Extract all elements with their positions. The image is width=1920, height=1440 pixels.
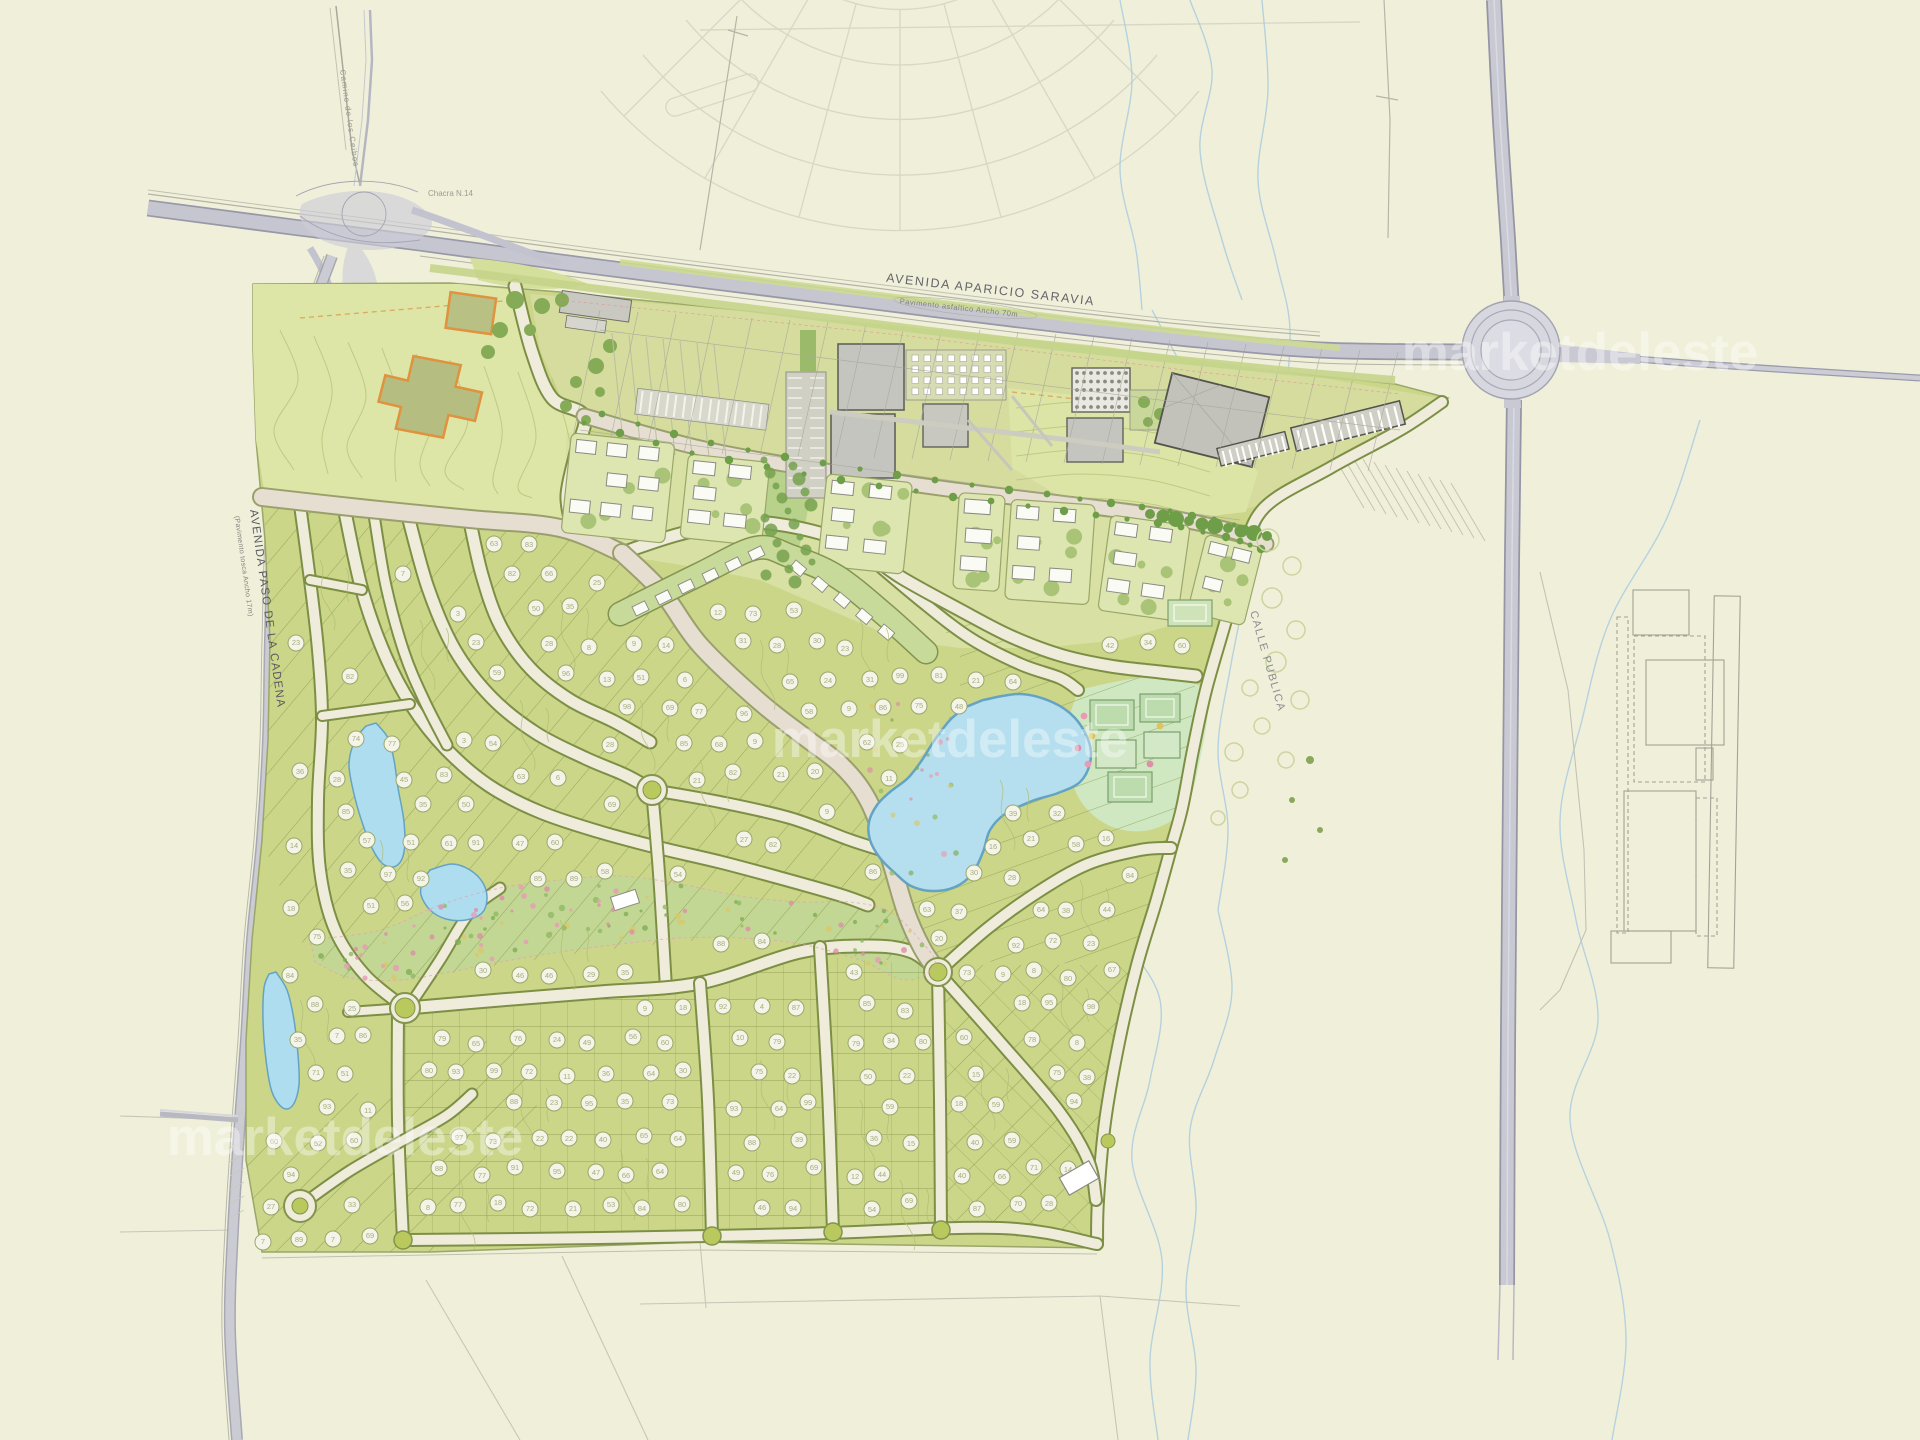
- svg-text:96: 96: [740, 709, 748, 718]
- svg-text:69: 69: [366, 1231, 374, 1240]
- svg-text:75: 75: [755, 1067, 763, 1076]
- svg-text:8: 8: [587, 643, 591, 652]
- svg-text:65: 65: [786, 677, 794, 686]
- svg-text:65: 65: [472, 1039, 480, 1048]
- svg-text:83: 83: [901, 1006, 909, 1015]
- svg-text:66: 66: [545, 569, 553, 578]
- svg-text:89: 89: [295, 1235, 303, 1244]
- svg-text:33: 33: [348, 1200, 356, 1209]
- svg-text:60: 60: [661, 1038, 669, 1047]
- svg-text:11: 11: [885, 774, 893, 783]
- svg-text:29: 29: [587, 970, 595, 979]
- svg-text:30: 30: [679, 1066, 687, 1075]
- svg-text:35: 35: [419, 800, 427, 809]
- svg-text:28: 28: [545, 639, 553, 648]
- svg-text:40: 40: [971, 1138, 979, 1147]
- svg-text:42: 42: [1106, 641, 1114, 650]
- svg-text:56: 56: [629, 1032, 637, 1041]
- svg-text:22: 22: [565, 1134, 573, 1143]
- svg-text:63: 63: [923, 905, 931, 914]
- svg-text:85: 85: [863, 999, 871, 1008]
- svg-text:72: 72: [526, 1204, 534, 1213]
- svg-text:8: 8: [1032, 966, 1036, 975]
- svg-text:36: 36: [870, 1134, 878, 1143]
- svg-text:51: 51: [367, 901, 375, 910]
- svg-text:23: 23: [1087, 939, 1095, 948]
- svg-text:25: 25: [348, 1004, 356, 1013]
- svg-text:47: 47: [516, 839, 524, 848]
- svg-text:79: 79: [773, 1037, 781, 1046]
- svg-text:61: 61: [445, 839, 453, 848]
- svg-text:28: 28: [333, 775, 341, 784]
- svg-text:98: 98: [623, 702, 631, 711]
- svg-text:9: 9: [825, 807, 829, 816]
- svg-text:46: 46: [545, 971, 553, 980]
- svg-text:63: 63: [517, 772, 525, 781]
- svg-text:79: 79: [438, 1034, 446, 1043]
- svg-text:30: 30: [813, 636, 821, 645]
- svg-text:54: 54: [868, 1205, 876, 1214]
- svg-text:58: 58: [1072, 840, 1080, 849]
- svg-text:44: 44: [878, 1170, 886, 1179]
- svg-text:22: 22: [903, 1071, 911, 1080]
- svg-text:82: 82: [508, 569, 516, 578]
- svg-text:9: 9: [632, 639, 636, 648]
- svg-text:64: 64: [674, 1134, 682, 1143]
- svg-text:18: 18: [679, 1003, 687, 1012]
- svg-text:60: 60: [960, 1033, 968, 1042]
- svg-text:15: 15: [907, 1139, 915, 1148]
- svg-text:80: 80: [919, 1037, 927, 1046]
- svg-text:45: 45: [400, 775, 408, 784]
- svg-text:83: 83: [440, 770, 448, 779]
- svg-text:14: 14: [662, 641, 670, 650]
- svg-text:31: 31: [739, 636, 747, 645]
- svg-text:82: 82: [729, 768, 737, 777]
- svg-text:21: 21: [972, 676, 980, 685]
- svg-text:80: 80: [425, 1066, 433, 1075]
- svg-text:28: 28: [773, 641, 781, 650]
- svg-text:92: 92: [417, 874, 425, 883]
- svg-text:21: 21: [569, 1204, 577, 1213]
- svg-text:85: 85: [534, 874, 542, 883]
- svg-text:53: 53: [607, 1200, 615, 1209]
- svg-text:18: 18: [494, 1198, 502, 1207]
- svg-text:88: 88: [748, 1138, 756, 1147]
- svg-text:64: 64: [647, 1069, 655, 1078]
- svg-text:4: 4: [760, 1002, 764, 1011]
- svg-text:81: 81: [935, 671, 943, 680]
- svg-text:14: 14: [290, 841, 298, 850]
- svg-text:21: 21: [693, 776, 701, 785]
- svg-text:72: 72: [1049, 936, 1057, 945]
- svg-text:35: 35: [621, 1097, 629, 1106]
- svg-text:34: 34: [1144, 638, 1152, 647]
- svg-text:11: 11: [563, 1072, 571, 1081]
- svg-text:77: 77: [388, 739, 396, 748]
- svg-text:77: 77: [478, 1171, 486, 1180]
- svg-text:64: 64: [1037, 905, 1045, 914]
- svg-text:3: 3: [456, 609, 460, 618]
- svg-text:69: 69: [905, 1196, 913, 1205]
- svg-text:40: 40: [599, 1135, 607, 1144]
- svg-text:59: 59: [493, 668, 501, 677]
- svg-text:50: 50: [532, 604, 540, 613]
- svg-text:marketdeleste: marketdeleste: [167, 1108, 523, 1167]
- svg-text:8: 8: [426, 1203, 430, 1212]
- svg-text:57: 57: [363, 836, 371, 845]
- svg-text:78: 78: [1028, 1035, 1036, 1044]
- svg-text:80: 80: [1064, 974, 1072, 983]
- svg-text:46: 46: [516, 971, 524, 980]
- svg-text:Chacra N.14: Chacra N.14: [428, 189, 473, 198]
- svg-text:28: 28: [1045, 1199, 1053, 1208]
- svg-text:10: 10: [736, 1033, 744, 1042]
- svg-text:50: 50: [462, 800, 470, 809]
- svg-text:39: 39: [795, 1135, 803, 1144]
- svg-text:79: 79: [852, 1039, 860, 1048]
- svg-text:82: 82: [346, 672, 354, 681]
- svg-text:83: 83: [525, 540, 533, 549]
- svg-text:69: 69: [810, 1163, 818, 1172]
- svg-text:87: 87: [973, 1204, 981, 1213]
- svg-text:7: 7: [401, 569, 405, 578]
- svg-text:82: 82: [769, 840, 777, 849]
- svg-text:84: 84: [286, 971, 294, 980]
- svg-text:60: 60: [1178, 641, 1186, 650]
- svg-text:7: 7: [261, 1237, 265, 1246]
- svg-text:50: 50: [864, 1072, 872, 1081]
- svg-text:28: 28: [606, 740, 614, 749]
- svg-text:66: 66: [998, 1172, 1006, 1181]
- svg-text:94: 94: [1070, 1097, 1078, 1106]
- svg-text:27: 27: [267, 1202, 275, 1211]
- svg-text:40: 40: [958, 1171, 966, 1180]
- svg-text:86: 86: [359, 1031, 367, 1040]
- svg-text:64: 64: [656, 1167, 664, 1176]
- svg-text:49: 49: [583, 1038, 591, 1047]
- svg-text:6: 6: [556, 773, 560, 782]
- svg-text:31: 31: [866, 675, 874, 684]
- svg-text:39: 39: [1009, 809, 1017, 818]
- svg-text:13: 13: [603, 675, 611, 684]
- svg-text:35: 35: [344, 866, 352, 875]
- svg-text:70: 70: [1014, 1199, 1022, 1208]
- svg-text:16: 16: [1102, 834, 1110, 843]
- svg-text:22: 22: [788, 1071, 796, 1080]
- svg-text:63: 63: [490, 539, 498, 548]
- svg-text:77: 77: [454, 1200, 462, 1209]
- svg-text:12: 12: [851, 1172, 859, 1181]
- svg-text:84: 84: [638, 1204, 646, 1213]
- svg-text:71: 71: [1030, 1163, 1038, 1172]
- svg-text:84: 84: [758, 937, 766, 946]
- svg-text:51: 51: [637, 673, 645, 682]
- svg-text:76: 76: [766, 1170, 774, 1179]
- svg-text:85: 85: [342, 807, 350, 816]
- svg-text:7: 7: [335, 1031, 339, 1040]
- svg-text:49: 49: [732, 1168, 740, 1177]
- svg-text:30: 30: [970, 868, 978, 877]
- svg-text:18: 18: [287, 904, 295, 913]
- svg-text:22: 22: [536, 1134, 544, 1143]
- svg-text:94: 94: [287, 1170, 295, 1179]
- svg-text:23: 23: [472, 638, 480, 647]
- svg-text:91: 91: [472, 838, 480, 847]
- svg-text:74: 74: [352, 734, 360, 743]
- svg-text:88: 88: [717, 939, 725, 948]
- svg-text:46: 46: [758, 1203, 766, 1212]
- svg-text:59: 59: [886, 1102, 894, 1111]
- svg-text:15: 15: [972, 1070, 980, 1079]
- svg-text:89: 89: [570, 874, 578, 883]
- svg-text:23: 23: [292, 638, 300, 647]
- svg-text:37: 37: [955, 907, 963, 916]
- svg-text:65: 65: [640, 1131, 648, 1140]
- svg-text:36: 36: [296, 767, 304, 776]
- svg-text:6: 6: [683, 675, 687, 684]
- svg-text:marketdeleste: marketdeleste: [772, 710, 1128, 769]
- svg-text:88: 88: [311, 1000, 319, 1009]
- svg-text:21: 21: [777, 770, 785, 779]
- svg-text:67: 67: [1108, 965, 1116, 974]
- svg-text:98: 98: [1087, 1002, 1095, 1011]
- svg-text:44: 44: [1103, 905, 1111, 914]
- svg-text:77: 77: [695, 707, 703, 716]
- svg-text:97: 97: [384, 870, 392, 879]
- svg-text:23: 23: [550, 1098, 558, 1107]
- svg-text:69: 69: [666, 703, 674, 712]
- svg-text:38: 38: [1062, 906, 1070, 915]
- svg-text:99: 99: [896, 671, 904, 680]
- svg-text:23: 23: [841, 644, 849, 653]
- svg-text:38: 38: [1083, 1073, 1091, 1082]
- svg-text:96: 96: [562, 669, 570, 678]
- svg-text:99: 99: [490, 1066, 498, 1075]
- svg-text:72: 72: [525, 1067, 533, 1076]
- svg-text:18: 18: [1018, 998, 1026, 1007]
- svg-text:76: 76: [514, 1034, 522, 1043]
- svg-text:51: 51: [341, 1069, 349, 1078]
- svg-text:35: 35: [566, 602, 574, 611]
- svg-text:9: 9: [1001, 970, 1005, 979]
- svg-text:75: 75: [313, 932, 321, 941]
- svg-text:54: 54: [489, 739, 497, 748]
- svg-text:20: 20: [935, 934, 943, 943]
- svg-text:56: 56: [401, 899, 409, 908]
- svg-text:60: 60: [551, 838, 559, 847]
- svg-text:64: 64: [775, 1104, 783, 1113]
- svg-text:86: 86: [869, 867, 877, 876]
- svg-text:24: 24: [553, 1035, 561, 1044]
- svg-text:68: 68: [715, 740, 723, 749]
- svg-text:73: 73: [666, 1097, 674, 1106]
- svg-text:9: 9: [753, 737, 757, 746]
- svg-text:30: 30: [479, 966, 487, 975]
- svg-text:85: 85: [680, 739, 688, 748]
- svg-text:66: 66: [622, 1171, 630, 1180]
- svg-text:59: 59: [1008, 1136, 1016, 1145]
- svg-text:59: 59: [992, 1100, 1000, 1109]
- svg-text:36: 36: [602, 1069, 610, 1078]
- svg-text:93: 93: [452, 1067, 460, 1076]
- svg-text:35: 35: [294, 1035, 302, 1044]
- svg-text:95: 95: [585, 1099, 593, 1108]
- svg-text:8: 8: [1075, 1038, 1079, 1047]
- svg-text:3: 3: [462, 736, 466, 745]
- svg-text:18: 18: [955, 1099, 963, 1108]
- svg-text:51: 51: [407, 838, 415, 847]
- svg-text:75: 75: [1053, 1068, 1061, 1077]
- svg-text:95: 95: [553, 1167, 561, 1176]
- svg-text:27: 27: [740, 835, 748, 844]
- svg-text:32: 32: [1053, 809, 1061, 818]
- svg-text:73: 73: [963, 968, 971, 977]
- svg-text:64: 64: [1009, 677, 1017, 686]
- svg-text:35: 35: [621, 968, 629, 977]
- svg-text:88: 88: [510, 1097, 518, 1106]
- svg-text:54: 54: [674, 870, 682, 879]
- svg-text:80: 80: [678, 1200, 686, 1209]
- svg-text:marketdeleste: marketdeleste: [1402, 323, 1758, 382]
- svg-text:84: 84: [1126, 871, 1134, 880]
- svg-text:21: 21: [1027, 834, 1035, 843]
- svg-text:95: 95: [1045, 998, 1053, 1007]
- svg-text:43: 43: [850, 968, 858, 977]
- svg-text:16: 16: [989, 842, 997, 851]
- svg-text:87: 87: [792, 1003, 800, 1012]
- svg-text:73: 73: [749, 609, 757, 618]
- svg-text:24: 24: [824, 676, 832, 685]
- svg-text:69: 69: [608, 800, 616, 809]
- svg-text:25: 25: [593, 578, 601, 587]
- svg-text:53: 53: [790, 606, 798, 615]
- svg-text:93: 93: [730, 1104, 738, 1113]
- svg-text:75: 75: [915, 701, 923, 710]
- svg-text:71: 71: [312, 1068, 320, 1077]
- svg-text:92: 92: [719, 1002, 727, 1011]
- svg-text:7: 7: [331, 1235, 335, 1244]
- svg-text:99: 99: [804, 1098, 812, 1107]
- svg-text:34: 34: [887, 1036, 895, 1045]
- svg-text:94: 94: [789, 1204, 797, 1213]
- svg-text:47: 47: [592, 1168, 600, 1177]
- svg-text:28: 28: [1008, 873, 1016, 882]
- svg-text:9: 9: [643, 1004, 647, 1013]
- svg-text:12: 12: [714, 608, 722, 617]
- svg-text:92: 92: [1012, 941, 1020, 950]
- svg-text:58: 58: [601, 867, 609, 876]
